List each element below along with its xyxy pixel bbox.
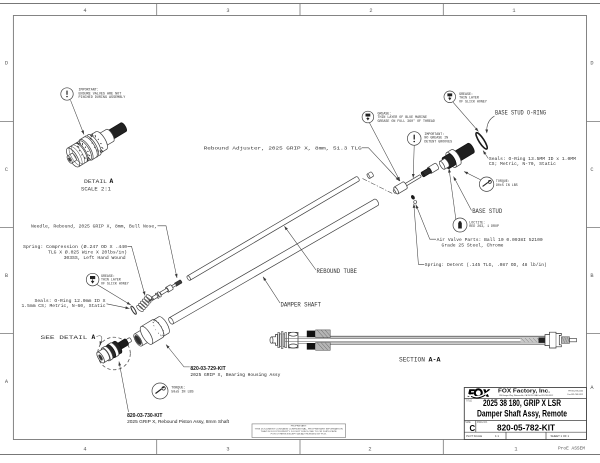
svg-text:Rebound Adjuster, 2025 GRIP X,: Rebound Adjuster, 2025 GRIP X, 8mm, 51.3…	[204, 146, 362, 152]
svg-text:A: A	[92, 334, 96, 341]
svg-text:3: 3	[226, 8, 229, 14]
svg-text:A-A: A-A	[429, 356, 441, 363]
svg-text:Air Valve Parts: Ball 10 0.093: Air Valve Parts: Ball 10 0.0938I 52100	[437, 237, 543, 243]
svg-text:Needle, Rebound, 2025 GRIP X,: Needle, Rebound, 2025 GRIP X, 8mm, Bull …	[31, 224, 157, 230]
svg-text:Damper Shaft Assy, Remote: Damper Shaft Assy, Remote	[477, 408, 567, 418]
svg-text:RED 263, 1 DROP: RED 263, 1 DROP	[469, 224, 499, 228]
svg-text:SECTION: SECTION	[399, 356, 425, 363]
svg-text:TLG X Ø.025 Wire X 20lbs/in): TLG X Ø.025 Wire X 20lbs/in)	[48, 248, 127, 255]
svg-text:D: D	[590, 61, 593, 67]
svg-text:BASE STUD O-RING: BASE STUD O-RING	[495, 110, 546, 117]
svg-text:Spring: Compression (Ø.247 OD: Spring: Compression (Ø.247 OD X .440	[23, 243, 127, 250]
svg-text:THIS DOCUMENT CONTAINS CONFIDE: THIS DOCUMENT CONTAINS CONFIDENTIAL, PRO…	[255, 427, 344, 430]
svg-text:1.5mm CS; Metric, N-60, Static: 1.5mm CS; Metric, N-60, Static	[22, 303, 106, 309]
svg-text:2: 2	[368, 447, 371, 453]
svg-text:820-03-729-KIT: 820-03-729-KIT	[190, 366, 225, 372]
svg-text:DETAIL: DETAIL	[84, 178, 107, 185]
svg-text:Grade 25 Steel, Chrome: Grade 25 Steel, Chrome	[442, 242, 504, 248]
svg-text:DETENT GROOVES: DETENT GROOVES	[424, 139, 452, 143]
svg-text:A: A	[110, 178, 114, 185]
svg-text:C: C	[590, 167, 593, 173]
svg-text:FOX Factory, Inc.: FOX Factory, Inc.	[498, 389, 551, 395]
svg-text:50±5 IN LBS: 50±5 IN LBS	[171, 391, 193, 395]
svg-text:Spring: Detent (.145 TLG, .087: Spring: Detent (.145 TLG, .087 OD, 48 lb…	[425, 262, 547, 268]
svg-text:PROPRIETARY:: PROPRIETARY:	[291, 425, 307, 428]
svg-text:REBOUND TUBE: REBOUND TUBE	[317, 268, 358, 275]
svg-text:OF SLICK HONEY: OF SLICK HONEY	[459, 99, 487, 103]
svg-text:1:1: 1:1	[495, 434, 499, 438]
svg-text:2: 2	[369, 8, 372, 14]
svg-text:90±5 IN LBS: 90±5 IN LBS	[496, 183, 518, 187]
svg-text:2025 38 180, GRIP X LSR: 2025 38 180, GRIP X LSR	[483, 398, 561, 408]
svg-text:C: C	[5, 167, 8, 173]
svg-text:820-05-782-KIT: 820-05-782-KIT	[497, 423, 555, 432]
svg-text:FOR OTHERS EXCEPT AS AUTHORIZE: FOR OTHERS EXCEPT AS AUTHORIZED BY FOX.	[271, 432, 328, 435]
svg-text:CS; Metric, N-70, Static: CS; Metric, N-70, Static	[489, 161, 556, 167]
svg-text:DAMPER SHAFT: DAMPER SHAFT	[281, 301, 322, 308]
svg-text:2025 GRIP X, Bearing Housing A: 2025 GRIP X, Bearing Housing Assy	[190, 372, 280, 378]
svg-text:4: 4	[83, 8, 86, 14]
svg-text:BASE STUD: BASE STUD	[472, 208, 502, 215]
svg-text:D: D	[5, 61, 8, 67]
svg-text:ProE ASSEM: ProE ASSEM	[558, 447, 585, 452]
svg-text:SCALE 2:1: SCALE 2:1	[81, 186, 111, 193]
svg-text:130 Hangar Way, Watsonville, C: 130 Hangar Way, Watsonville, CA 95076 US…	[499, 394, 553, 397]
svg-text:OF SLICK HONEY: OF SLICK HONEY	[101, 281, 129, 285]
svg-text:SEE DETAIL: SEE DETAIL	[41, 334, 89, 341]
svg-text:SHEET 1 OF 1: SHEET 1 OF 1	[551, 434, 570, 438]
svg-text:1: 1	[512, 8, 515, 14]
svg-text:PH 831-768-1100: PH 831-768-1100	[568, 391, 583, 393]
svg-text:B: B	[5, 273, 8, 279]
svg-text:2025 GRIP X, Rebound Piston As: 2025 GRIP X, Rebound Piston Assy, 8mm Sh…	[127, 419, 230, 424]
svg-text:TITLE: TITLE	[466, 400, 473, 403]
svg-text:4: 4	[83, 447, 86, 453]
svg-text:B: B	[590, 273, 593, 279]
svg-text:GREASE ON FULL 360° OF THREAD: GREASE ON FULL 360° OF THREAD	[378, 119, 435, 123]
svg-text:1: 1	[514, 447, 517, 453]
svg-text:303SS, Left Hand Wound: 303SS, Left Hand Wound	[64, 255, 126, 261]
svg-text:3: 3	[226, 447, 229, 453]
svg-text:PINCHED DURING ASSEMBLY: PINCHED DURING ASSEMBLY	[79, 96, 126, 100]
svg-text:Fax 831-768-9312: Fax 831-768-9312	[568, 394, 583, 396]
svg-text:PLOT SCALE: PLOT SCALE	[466, 434, 482, 438]
svg-text:DWG NO.: DWG NO.	[477, 421, 488, 424]
svg-text:C: C	[470, 424, 476, 433]
